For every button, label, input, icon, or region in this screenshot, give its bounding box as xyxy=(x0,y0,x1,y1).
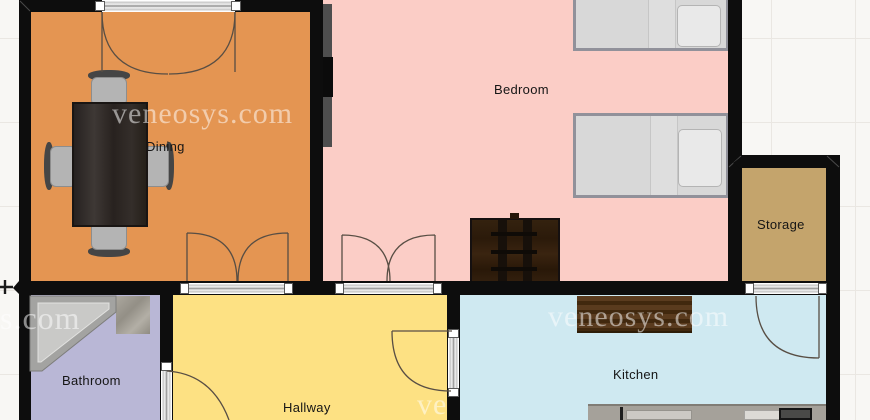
door-cap xyxy=(818,283,827,294)
door-cap xyxy=(745,283,754,294)
watermark-text: ve xyxy=(417,388,447,420)
dresser-handle xyxy=(491,232,537,236)
door-cap xyxy=(335,283,344,294)
dresser-knob xyxy=(510,213,519,219)
kitchen-sink-icon xyxy=(626,410,692,420)
door-cap xyxy=(433,283,442,294)
room-label-hallway: Hallway xyxy=(283,400,331,415)
opening-entry-double-door xyxy=(102,0,235,12)
watermark-text: s.com xyxy=(0,300,81,337)
floor-plan: Dining Bedroom Storage Bathroom Hallway … xyxy=(0,0,870,420)
door-cap xyxy=(448,388,459,397)
dresser-handle xyxy=(491,250,537,254)
opening-kitchen-door xyxy=(448,330,459,397)
room-label-dining: Dining xyxy=(146,139,185,154)
washbasin-icon xyxy=(116,296,150,334)
counter-divider xyxy=(620,407,623,420)
room-label-bedroom: Bedroom xyxy=(494,82,549,97)
door-cap xyxy=(180,283,189,294)
door-cap xyxy=(161,362,172,371)
pillow-icon xyxy=(678,129,722,187)
crosshair-marker-icon xyxy=(0,280,13,294)
wall-bedroom-right xyxy=(728,0,742,295)
room-label-storage: Storage xyxy=(757,217,805,232)
single-bed-icon xyxy=(573,113,729,198)
door-cap xyxy=(284,283,293,294)
watermark-text: veneosys.com xyxy=(548,300,729,334)
room-label-kitchen: Kitchen xyxy=(613,367,658,382)
room-label-bathroom: Bathroom xyxy=(62,373,121,388)
dresser-icon xyxy=(470,218,560,284)
wall-outer-left xyxy=(19,0,31,420)
dresser-handle xyxy=(491,267,537,271)
wall-storage-top xyxy=(728,155,840,168)
door-cap xyxy=(448,329,459,338)
opening-bathroom-door xyxy=(161,363,172,420)
opening-bedroom-hallway xyxy=(340,283,437,294)
opening-dining-hallway xyxy=(185,283,288,294)
wall-outer-right xyxy=(826,155,840,420)
wall-dining-bedroom xyxy=(310,0,323,295)
bed-sheet-fold xyxy=(648,0,676,48)
stove-icon xyxy=(779,408,812,420)
pillow-icon xyxy=(677,5,721,47)
watermark-text: veneosys.com xyxy=(112,97,293,131)
stove-icon xyxy=(744,410,780,420)
door-cap xyxy=(95,1,105,11)
door-cap xyxy=(231,1,241,11)
bed-sheet-fold xyxy=(650,116,678,195)
single-bed-icon xyxy=(573,0,729,51)
opening-storage-kitchen xyxy=(750,283,823,294)
